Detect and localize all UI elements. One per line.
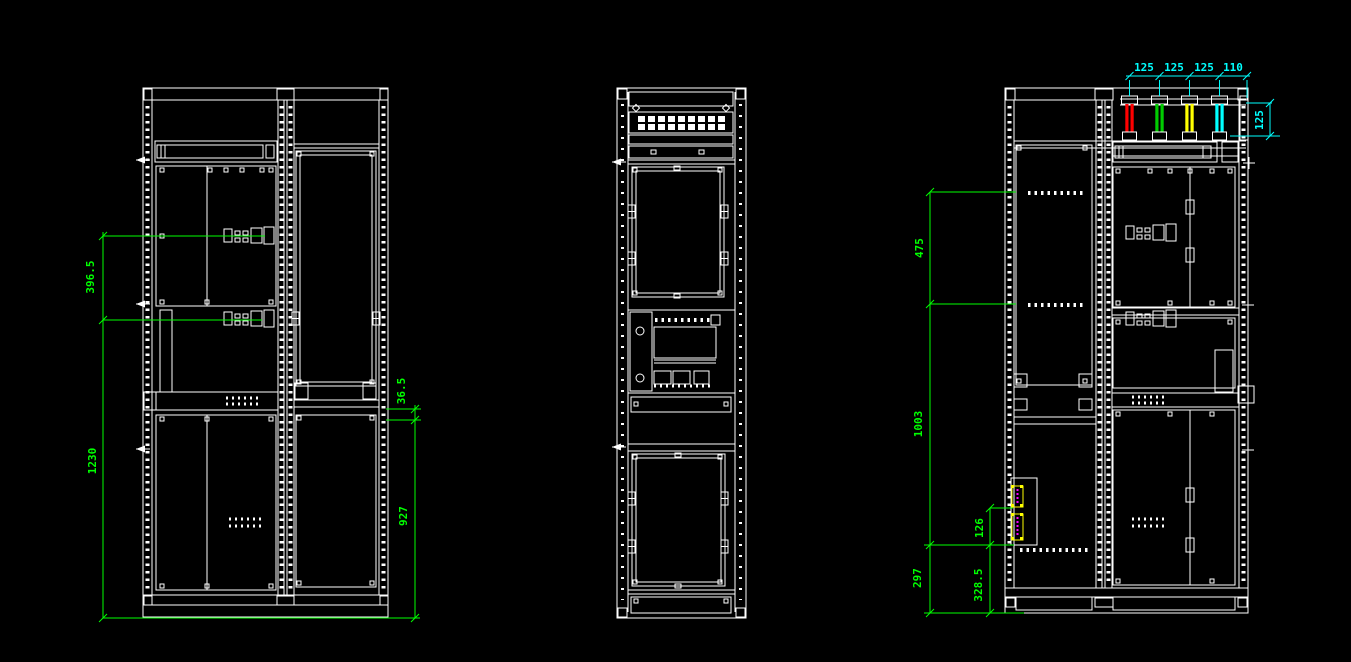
busbar-phase-4: [1212, 96, 1228, 140]
cabinet-side-view: [612, 88, 746, 618]
dim-small-gap: 36.5: [395, 378, 408, 405]
split-marker-arrow: [136, 157, 150, 164]
cabinet-engineering-drawing: 396.5 1230 36.5 927: [0, 0, 1351, 662]
dim-upper-section: 475: [913, 238, 926, 258]
breaker-cluster: [224, 310, 274, 327]
rear-equipment-bay: [1112, 142, 1254, 610]
cable-duct: [630, 312, 652, 391]
side-channel: [1215, 350, 1233, 392]
side-lower-door: [628, 453, 728, 588]
lower-door-panel: [296, 415, 376, 587]
vertical-duct: [160, 310, 172, 392]
dim-component-height: 328.5: [972, 568, 985, 601]
lower-equipment-panel: [156, 415, 276, 590]
busbar-phase-3: [1182, 96, 1198, 140]
terminal-strip: [1113, 142, 1217, 162]
dim-component-gap: 126: [973, 518, 986, 538]
highlighted-component-2: [1011, 513, 1023, 540]
breaker-cluster: [1126, 224, 1176, 241]
terminal-block: [673, 371, 690, 384]
front-left-bay: [144, 141, 278, 590]
cabinet-front-view: 396.5 1230 36.5 927: [84, 88, 421, 622]
dim-busbar-depth: 125: [1253, 110, 1266, 130]
busbar-phase-1: [1122, 96, 1138, 140]
front-right-bay: [292, 144, 380, 587]
side-bracket: [1238, 386, 1254, 403]
terminal-strip: [155, 141, 277, 162]
dim-busbar-spacing-4: 110: [1223, 61, 1243, 74]
duct-hole: [636, 327, 644, 335]
side-upper-door: [628, 166, 728, 298]
busbar-assembly: [1120, 96, 1248, 140]
front-frame: [143, 88, 388, 617]
cad-drawing-canvas: 396.5 1230 36.5 927: [0, 0, 1351, 662]
upper-door-panel: [296, 151, 376, 386]
rear-mounting-posts: [1010, 100, 1244, 588]
front-dimensions-right: 36.5 927: [386, 378, 421, 622]
dim-lower-section: 927: [397, 506, 410, 526]
duct-hole: [636, 374, 644, 382]
side-terminal-section: [628, 310, 735, 393]
rear-door-bay: [1011, 145, 1096, 610]
front-dimensions-left: 396.5 1230: [84, 232, 420, 622]
dim-busbar-spacing-2: 125: [1164, 61, 1184, 74]
upper-equipment-panel: [1113, 167, 1235, 307]
dim-bottom-section: 297: [911, 568, 924, 588]
lower-equipment-panel: [1113, 410, 1235, 585]
terminal-block: [654, 371, 671, 384]
rear-dimensions: 475 1003 297 126 328.5: [911, 188, 1024, 617]
busbar-dimensions: 125 125 125 110 125: [1126, 61, 1281, 140]
highlighted-component-1: [1011, 485, 1023, 507]
busbar-phase-2: [1152, 96, 1168, 140]
dim-middle-section: 1003: [912, 411, 925, 438]
terminal-block: [694, 371, 709, 384]
dim-busbar-spacing-1: 125: [1134, 61, 1154, 74]
front-mounting-posts: [148, 100, 384, 595]
dim-overall-height: 1230: [86, 448, 99, 475]
split-marker-arrow: [612, 444, 626, 451]
cabinet-rear-view: 125 125 125 110 125: [911, 61, 1280, 617]
rear-door-panel: [1016, 145, 1092, 385]
dim-busbar-spacing-3: 125: [1194, 61, 1214, 74]
dim-upper-section: 396.5: [84, 260, 97, 293]
